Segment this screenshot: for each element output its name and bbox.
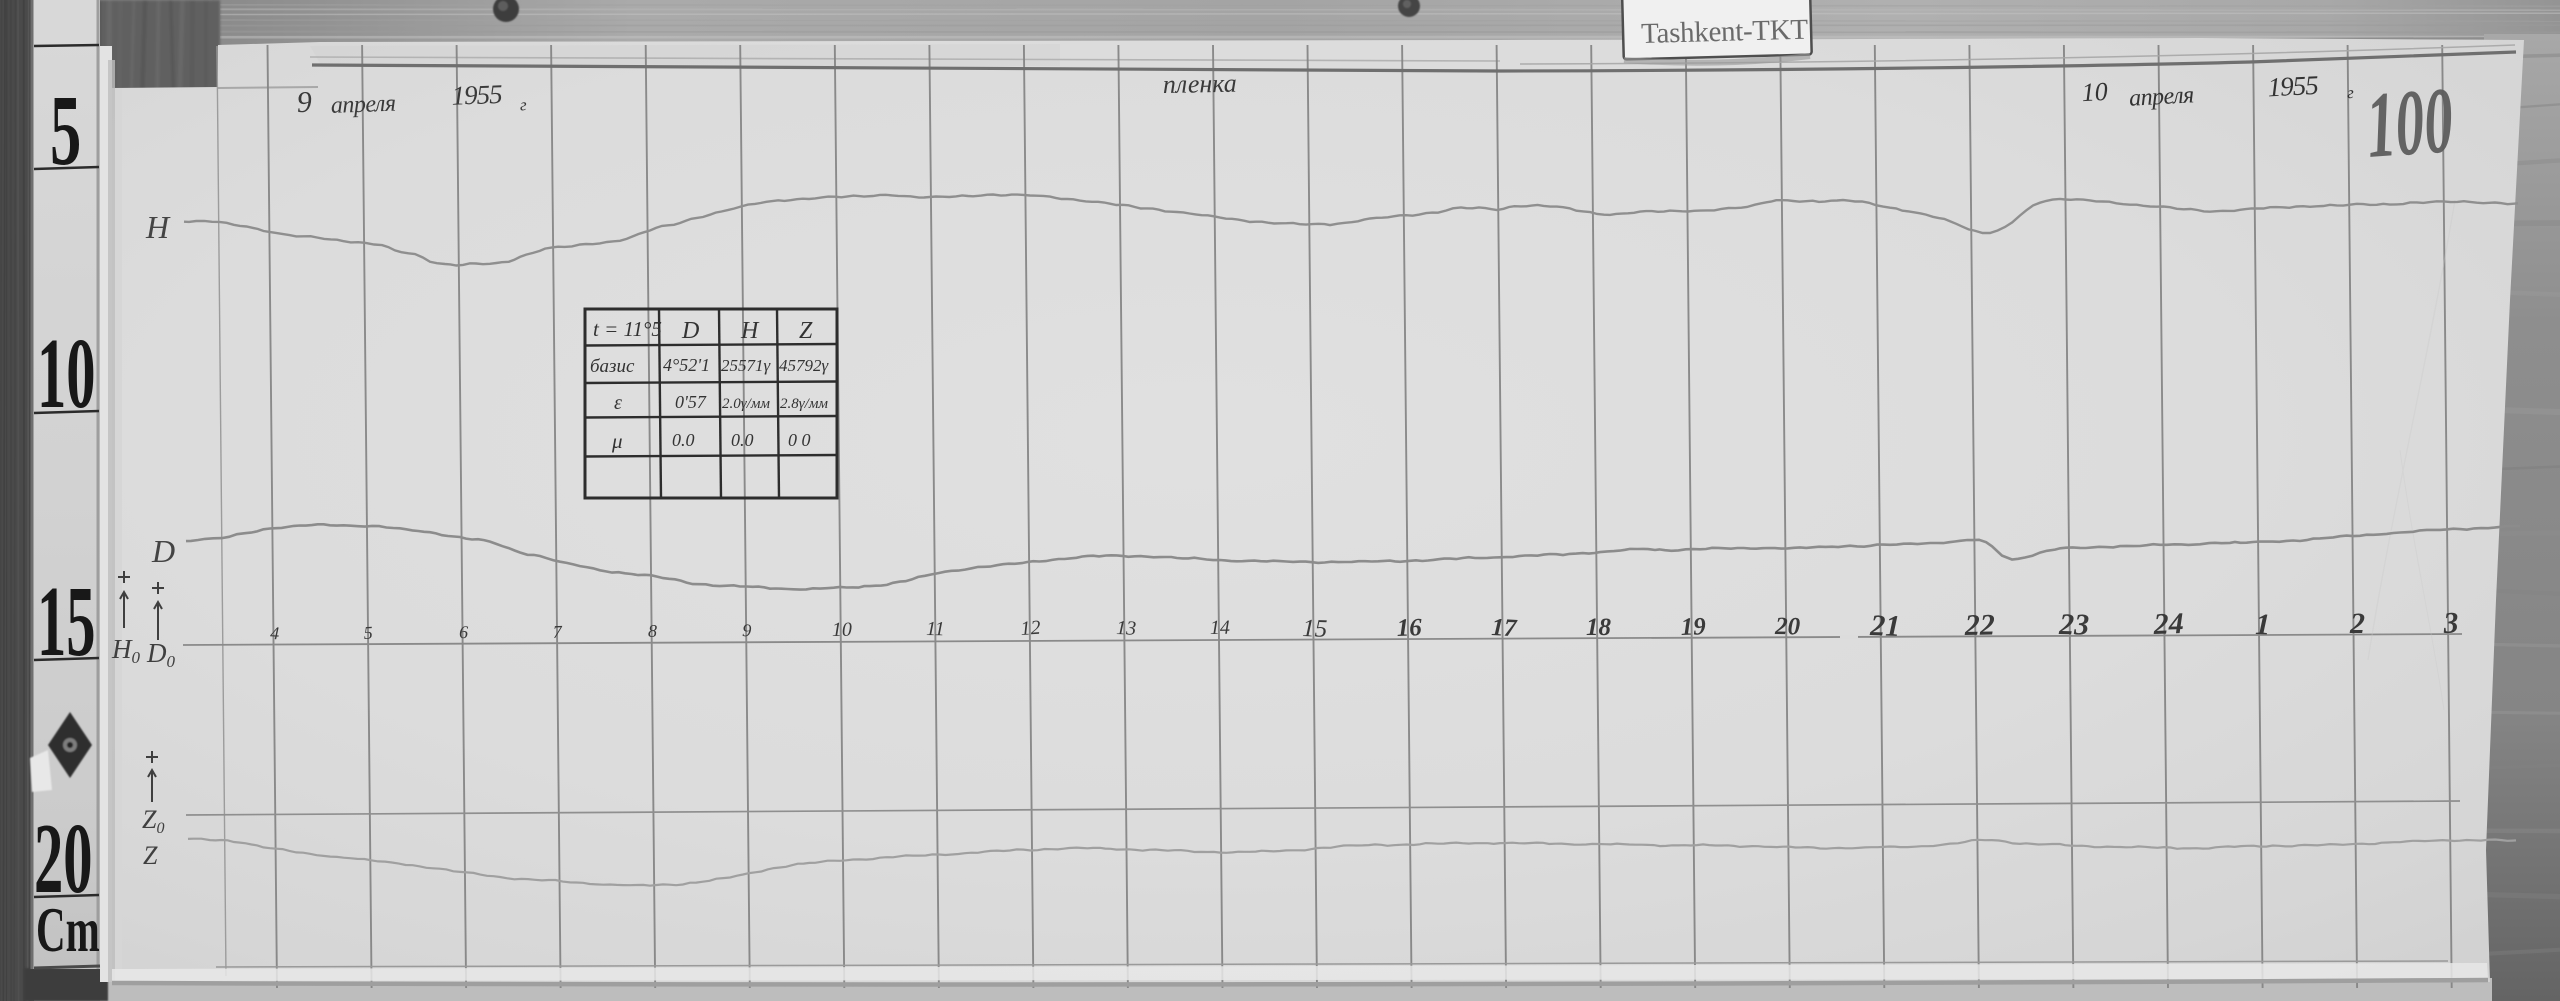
svg-text:8: 8 bbox=[648, 621, 657, 641]
svg-text:Tashkent-TKT: Tashkent-TKT bbox=[1641, 14, 1809, 50]
svg-text:25571γ: 25571γ bbox=[721, 356, 772, 375]
svg-text:23: 23 bbox=[2058, 608, 2090, 642]
svg-text:Z: Z bbox=[799, 318, 813, 344]
svg-text:15: 15 bbox=[1302, 615, 1328, 643]
svg-text:2.8γ/мм: 2.8γ/мм bbox=[780, 396, 828, 412]
svg-text:0'57: 0'57 bbox=[675, 392, 707, 412]
svg-text:21: 21 bbox=[1869, 609, 1901, 643]
svg-text:базис: базис bbox=[590, 356, 635, 377]
svg-text:апреля: апреля bbox=[330, 91, 396, 119]
svg-text:14: 14 bbox=[1210, 617, 1230, 639]
svg-text:0.0: 0.0 bbox=[672, 430, 695, 450]
svg-text:H: H bbox=[145, 209, 171, 245]
svg-text:3: 3 bbox=[2442, 606, 2460, 640]
svg-text:6: 6 bbox=[459, 622, 468, 642]
svg-text:20: 20 bbox=[1774, 613, 1801, 640]
svg-text:5: 5 bbox=[50, 75, 81, 187]
svg-text:12: 12 bbox=[1020, 617, 1041, 640]
svg-text:100: 100 bbox=[2363, 68, 2456, 178]
svg-text:17: 17 bbox=[1491, 614, 1519, 642]
svg-text:16: 16 bbox=[1396, 614, 1422, 642]
svg-text:18: 18 bbox=[1586, 614, 1612, 641]
svg-text:9: 9 bbox=[296, 86, 312, 120]
svg-text:10: 10 bbox=[37, 316, 96, 429]
svg-text:15: 15 bbox=[37, 564, 96, 677]
svg-text:пленка: пленка bbox=[1163, 69, 1237, 99]
svg-text:19: 19 bbox=[1680, 613, 1706, 641]
svg-text:ε: ε bbox=[614, 392, 622, 414]
svg-text:11: 11 bbox=[926, 618, 945, 640]
svg-text:D: D bbox=[151, 533, 175, 569]
svg-text:22: 22 bbox=[1964, 608, 1996, 642]
svg-text:7: 7 bbox=[552, 622, 563, 642]
svg-text:13: 13 bbox=[1116, 617, 1137, 640]
svg-text:H: H bbox=[740, 318, 760, 344]
svg-text:1955: 1955 bbox=[2267, 70, 2319, 103]
svg-text:2.0γ/мм: 2.0γ/мм bbox=[722, 396, 770, 412]
svg-text:0 0: 0 0 bbox=[788, 430, 811, 450]
svg-text:Cm: Cm bbox=[36, 894, 100, 965]
svg-text:апреля: апреля bbox=[2128, 82, 2194, 111]
svg-text:10: 10 bbox=[832, 619, 852, 641]
svg-text:t = 11°5: t = 11°5 bbox=[593, 317, 662, 341]
svg-text:4°52'1: 4°52'1 bbox=[663, 355, 710, 375]
svg-text:24: 24 bbox=[2152, 607, 2184, 641]
svg-text:D: D bbox=[681, 318, 699, 344]
svg-text:45792γ: 45792γ bbox=[779, 356, 830, 375]
svg-text:9: 9 bbox=[742, 620, 752, 640]
svg-text:4: 4 bbox=[270, 623, 280, 643]
svg-text:2: 2 bbox=[2349, 607, 2365, 640]
svg-text:0.0: 0.0 bbox=[731, 430, 754, 450]
svg-text:1955: 1955 bbox=[451, 79, 503, 111]
svg-text:μ: μ bbox=[611, 429, 623, 453]
svg-text:1: 1 bbox=[2255, 608, 2271, 642]
svg-text:Z: Z bbox=[143, 841, 158, 870]
svg-text:10: 10 bbox=[2081, 77, 2108, 107]
svg-text:г: г bbox=[520, 95, 528, 114]
svg-text:5: 5 bbox=[363, 623, 373, 643]
